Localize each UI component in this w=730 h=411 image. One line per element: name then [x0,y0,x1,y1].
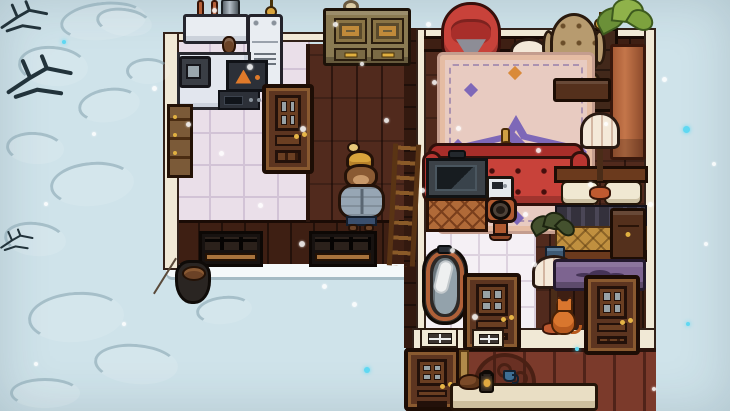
snowflake [652,387,656,391]
snowflake [258,203,263,208]
nightstand[interactable] [610,208,646,260]
branch-icon [0,226,36,256]
snowflake [575,347,579,351]
door-mid-rail [275,135,301,145]
snow-drift [26,289,125,346]
toilet-foot [489,234,512,241]
microwave-small[interactable] [218,90,260,110]
snowflake [683,126,690,133]
armoire-cabinet[interactable] [323,8,411,66]
door-window [476,284,508,316]
blue-cup[interactable] [503,370,516,382]
snowflake [62,40,66,44]
snowflake [186,122,191,127]
snowflake [384,118,389,123]
snow-drift [10,378,80,408]
snowflake [588,182,593,187]
door-mid-rail [597,323,627,332]
snowflake [44,202,48,206]
game-viewport[interactable] [0,0,730,411]
door-window [417,359,447,386]
door-knob [302,132,307,137]
bare-branch [0,0,52,36]
snowflake [219,151,224,156]
door-mid-rail [417,390,447,398]
window-bars [315,237,371,250]
bear-jacket [338,184,385,219]
bathtub[interactable] [422,247,468,325]
cooking-pot[interactable] [175,260,211,304]
snowflake [662,77,667,82]
sink-vanity[interactable] [426,152,488,232]
kitchen-door[interactable] [262,84,314,174]
snowflake [712,162,716,166]
window-bars [205,237,257,250]
dark-side-table[interactable] [553,78,611,102]
snowflake [333,22,338,27]
snowflake [648,202,653,207]
bare-branch [6,54,78,104]
sink-faucet [448,150,466,159]
fridge-top-panel [252,19,278,43]
door-knob [628,318,633,323]
snow-drift [48,158,136,209]
snowflake [247,64,253,70]
snowflake [604,122,608,126]
armoire-door [334,18,367,44]
cat-body [551,309,576,335]
snowflake [364,367,370,373]
snowflake [152,86,157,91]
snowflake [536,148,541,153]
bare-branch [0,226,36,256]
snowflake [686,322,690,326]
snowflake [360,62,364,66]
snowflake [704,242,708,246]
barred-window-left[interactable] [199,231,263,267]
snowflake [472,314,478,320]
door-slats [597,336,627,344]
toilet[interactable] [485,197,517,243]
lamp-base [589,186,611,200]
snowflake [426,22,431,27]
snowflake [420,188,425,193]
door-mid-rail [476,320,508,329]
door-window [275,95,301,131]
snowflake [122,322,126,326]
table-lantern[interactable] [479,372,494,393]
armoire-drawer [371,48,404,61]
bear-character[interactable] [338,146,386,234]
armoire-drawer [334,48,367,61]
snowflake [34,362,38,366]
snowflake [456,126,461,131]
snowflake [322,284,327,289]
small-window-2[interactable] [472,329,504,348]
snowflake [212,8,217,13]
branch-icon [6,54,78,104]
snow-drift [76,84,142,126]
door-window [597,286,627,319]
toilet-lid [490,200,511,220]
snowflake [523,212,528,217]
stove-top [183,14,249,44]
snowflake [92,132,96,136]
window-sill [205,253,257,261]
microwave-large[interactable] [179,56,211,88]
lamp-shade [580,112,620,149]
door-slats [275,150,301,163]
cat-head [556,297,573,312]
armoire-door [371,18,404,44]
snowflake [532,262,537,267]
snow-drift [5,130,65,166]
door-slats [417,401,447,407]
snowflake [300,126,306,132]
lamp-pole [597,147,603,180]
bedroom-floor-lamp[interactable] [580,112,620,200]
snow-drift [92,340,179,387]
window-sill [315,253,371,261]
small-window-1[interactable] [420,328,458,348]
bedroom-south-door[interactable] [584,275,640,355]
snowflake [299,241,305,247]
snowflake [432,80,437,85]
barred-window-right[interactable] [309,231,377,267]
snow-drift [126,58,170,84]
tall-cabinet[interactable] [167,104,193,178]
snowflake [450,248,455,253]
vanity-cabinet [426,198,488,232]
branch-icon [0,0,52,36]
sink-basin [435,165,477,191]
orange-cat[interactable] [549,297,579,337]
pot-contents [182,266,206,281]
door-knob [509,315,514,320]
snowflake [352,302,357,307]
